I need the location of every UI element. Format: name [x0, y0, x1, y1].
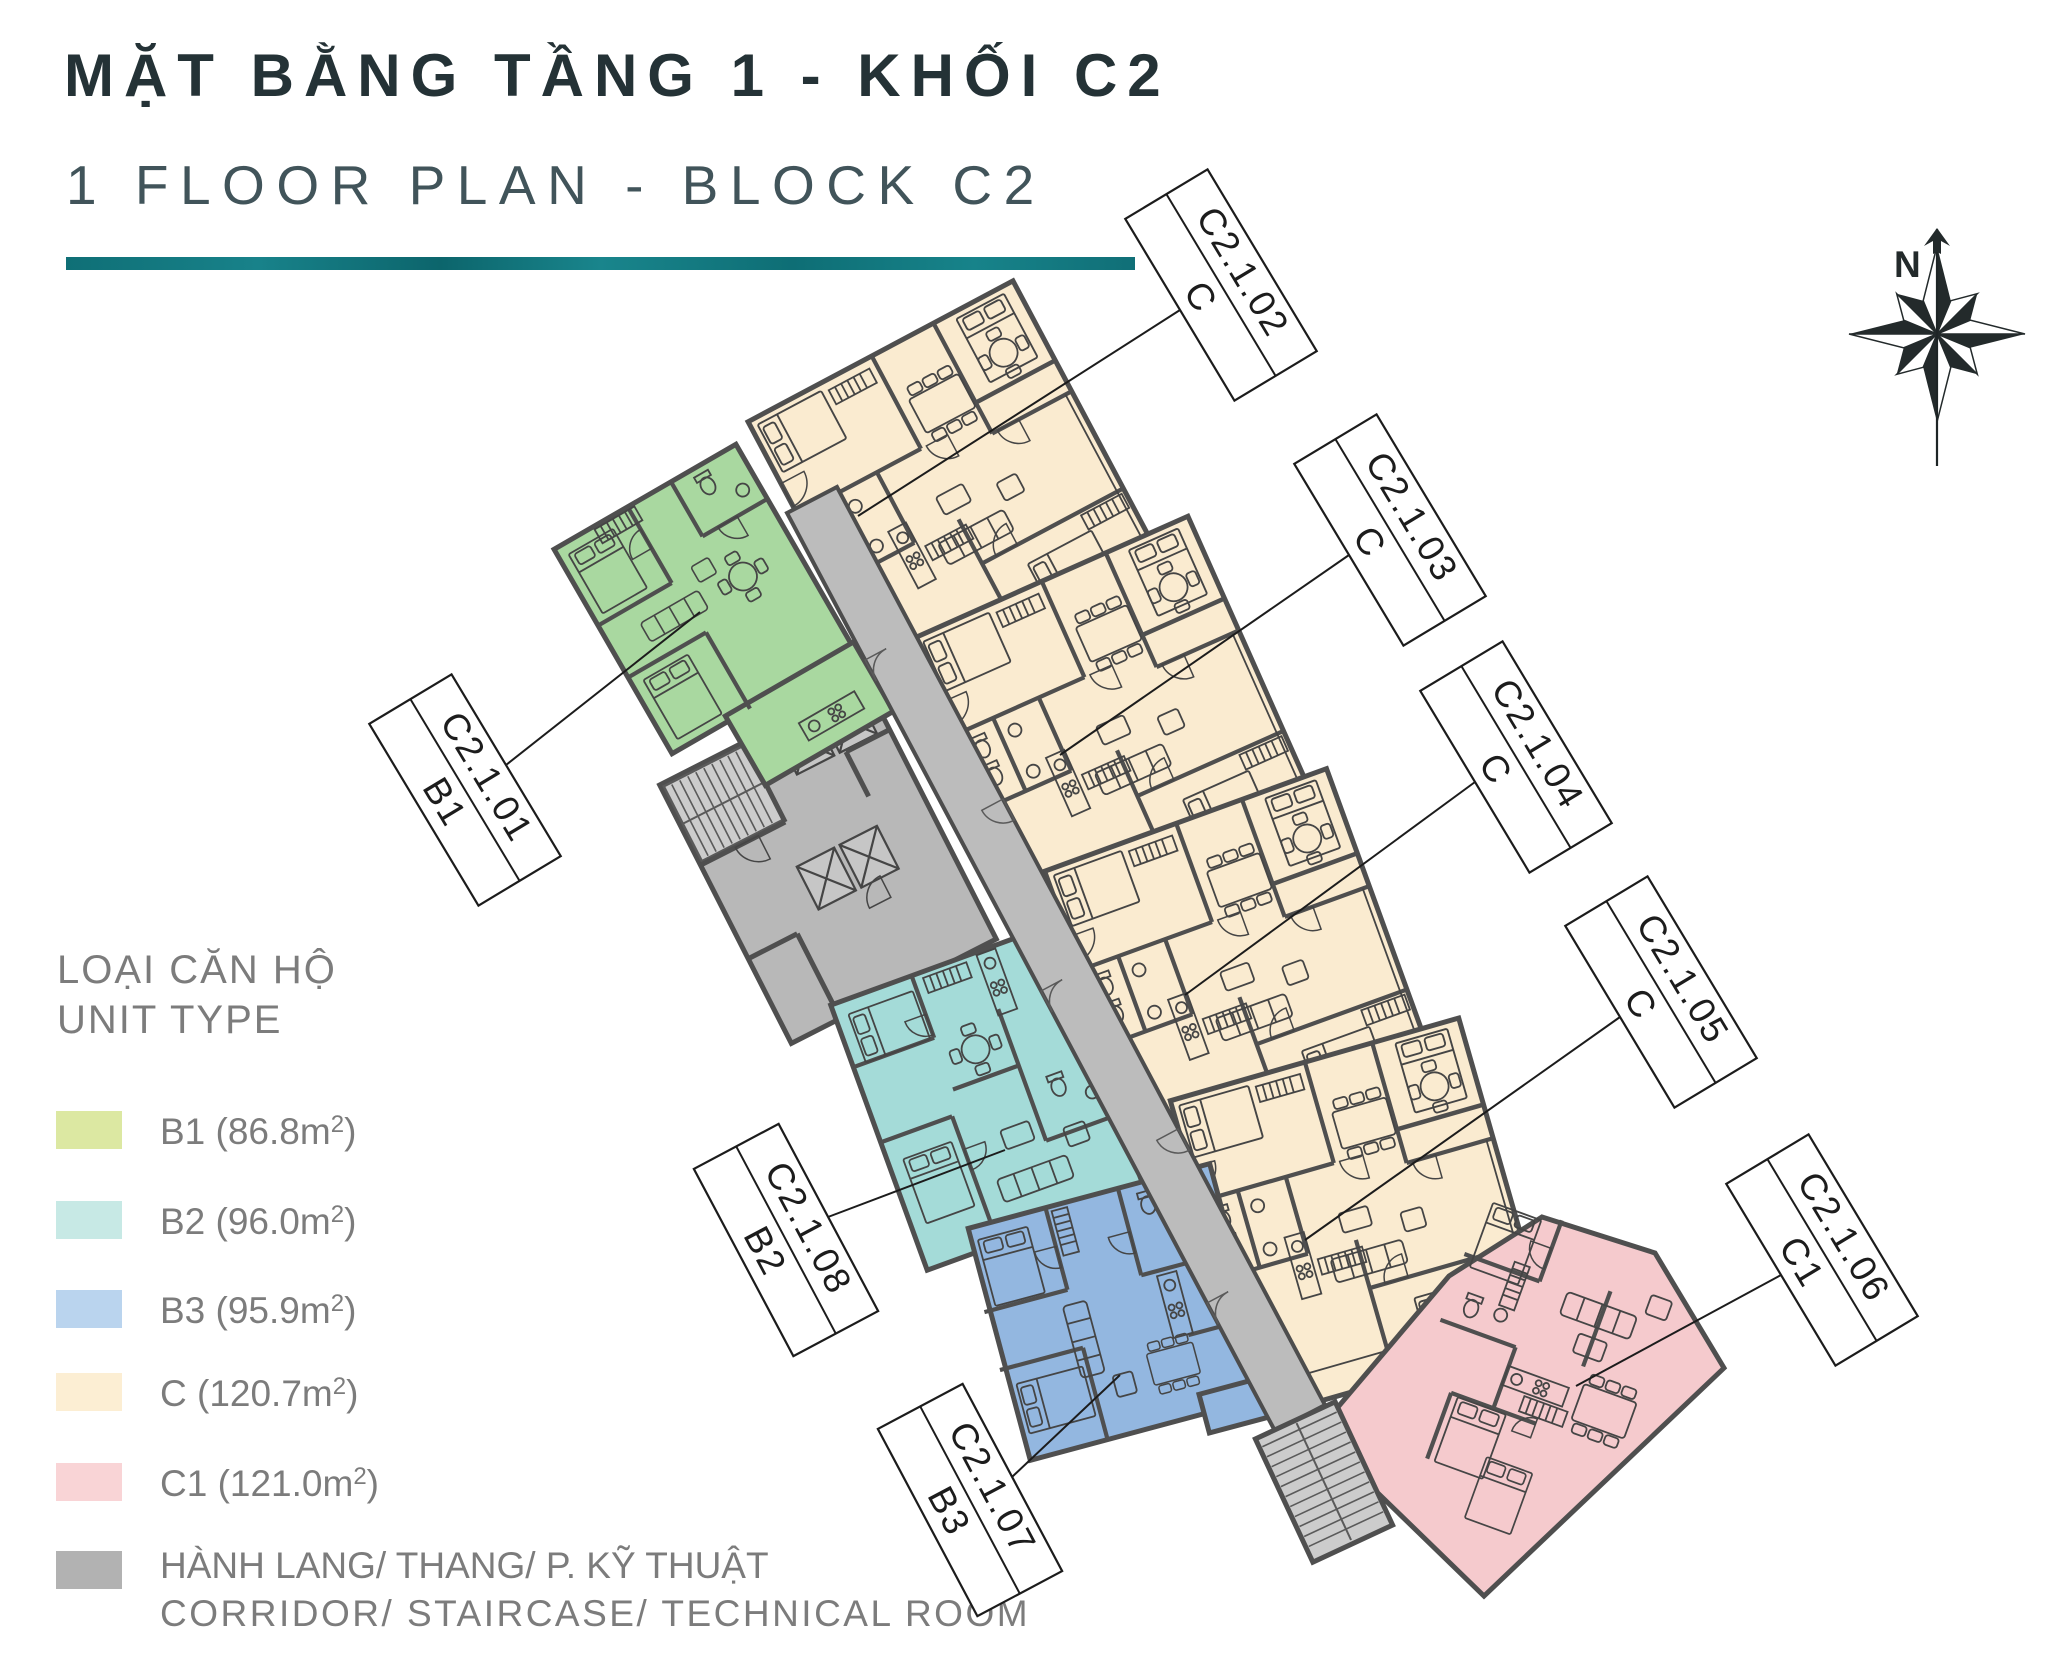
- svg-text:CORRIDOR/ STAIRCASE/ TECHNICAL: CORRIDOR/ STAIRCASE/ TECHNICAL ROOM: [160, 1593, 1030, 1634]
- svg-text:MẶT BẰNG TẦNG 1 - KHỐI C2: MẶT BẰNG TẦNG 1 - KHỐI C2: [64, 42, 1171, 109]
- svg-text:B3 (95.9m2): B3 (95.9m2): [160, 1290, 356, 1331]
- svg-text:HÀNH LANG/ THANG/ P. KỸ THUẬT: HÀNH LANG/ THANG/ P. KỸ THUẬT: [160, 1545, 769, 1586]
- svg-text:B1 (86.8m2): B1 (86.8m2): [160, 1111, 356, 1152]
- svg-text:C1 (121.0m2): C1 (121.0m2): [160, 1463, 379, 1504]
- svg-text:C (120.7m2): C (120.7m2): [160, 1373, 358, 1414]
- svg-text:1 FLOOR PLAN - BLOCK C2: 1 FLOOR PLAN - BLOCK C2: [66, 154, 1046, 216]
- svg-text:B2 (96.0m2): B2 (96.0m2): [160, 1201, 356, 1242]
- svg-text:UNIT TYPE: UNIT TYPE: [57, 998, 282, 1042]
- svg-text:N: N: [1894, 244, 1921, 285]
- svg-text:LOẠI CĂN HỘ: LOẠI CĂN HỘ: [57, 947, 337, 992]
